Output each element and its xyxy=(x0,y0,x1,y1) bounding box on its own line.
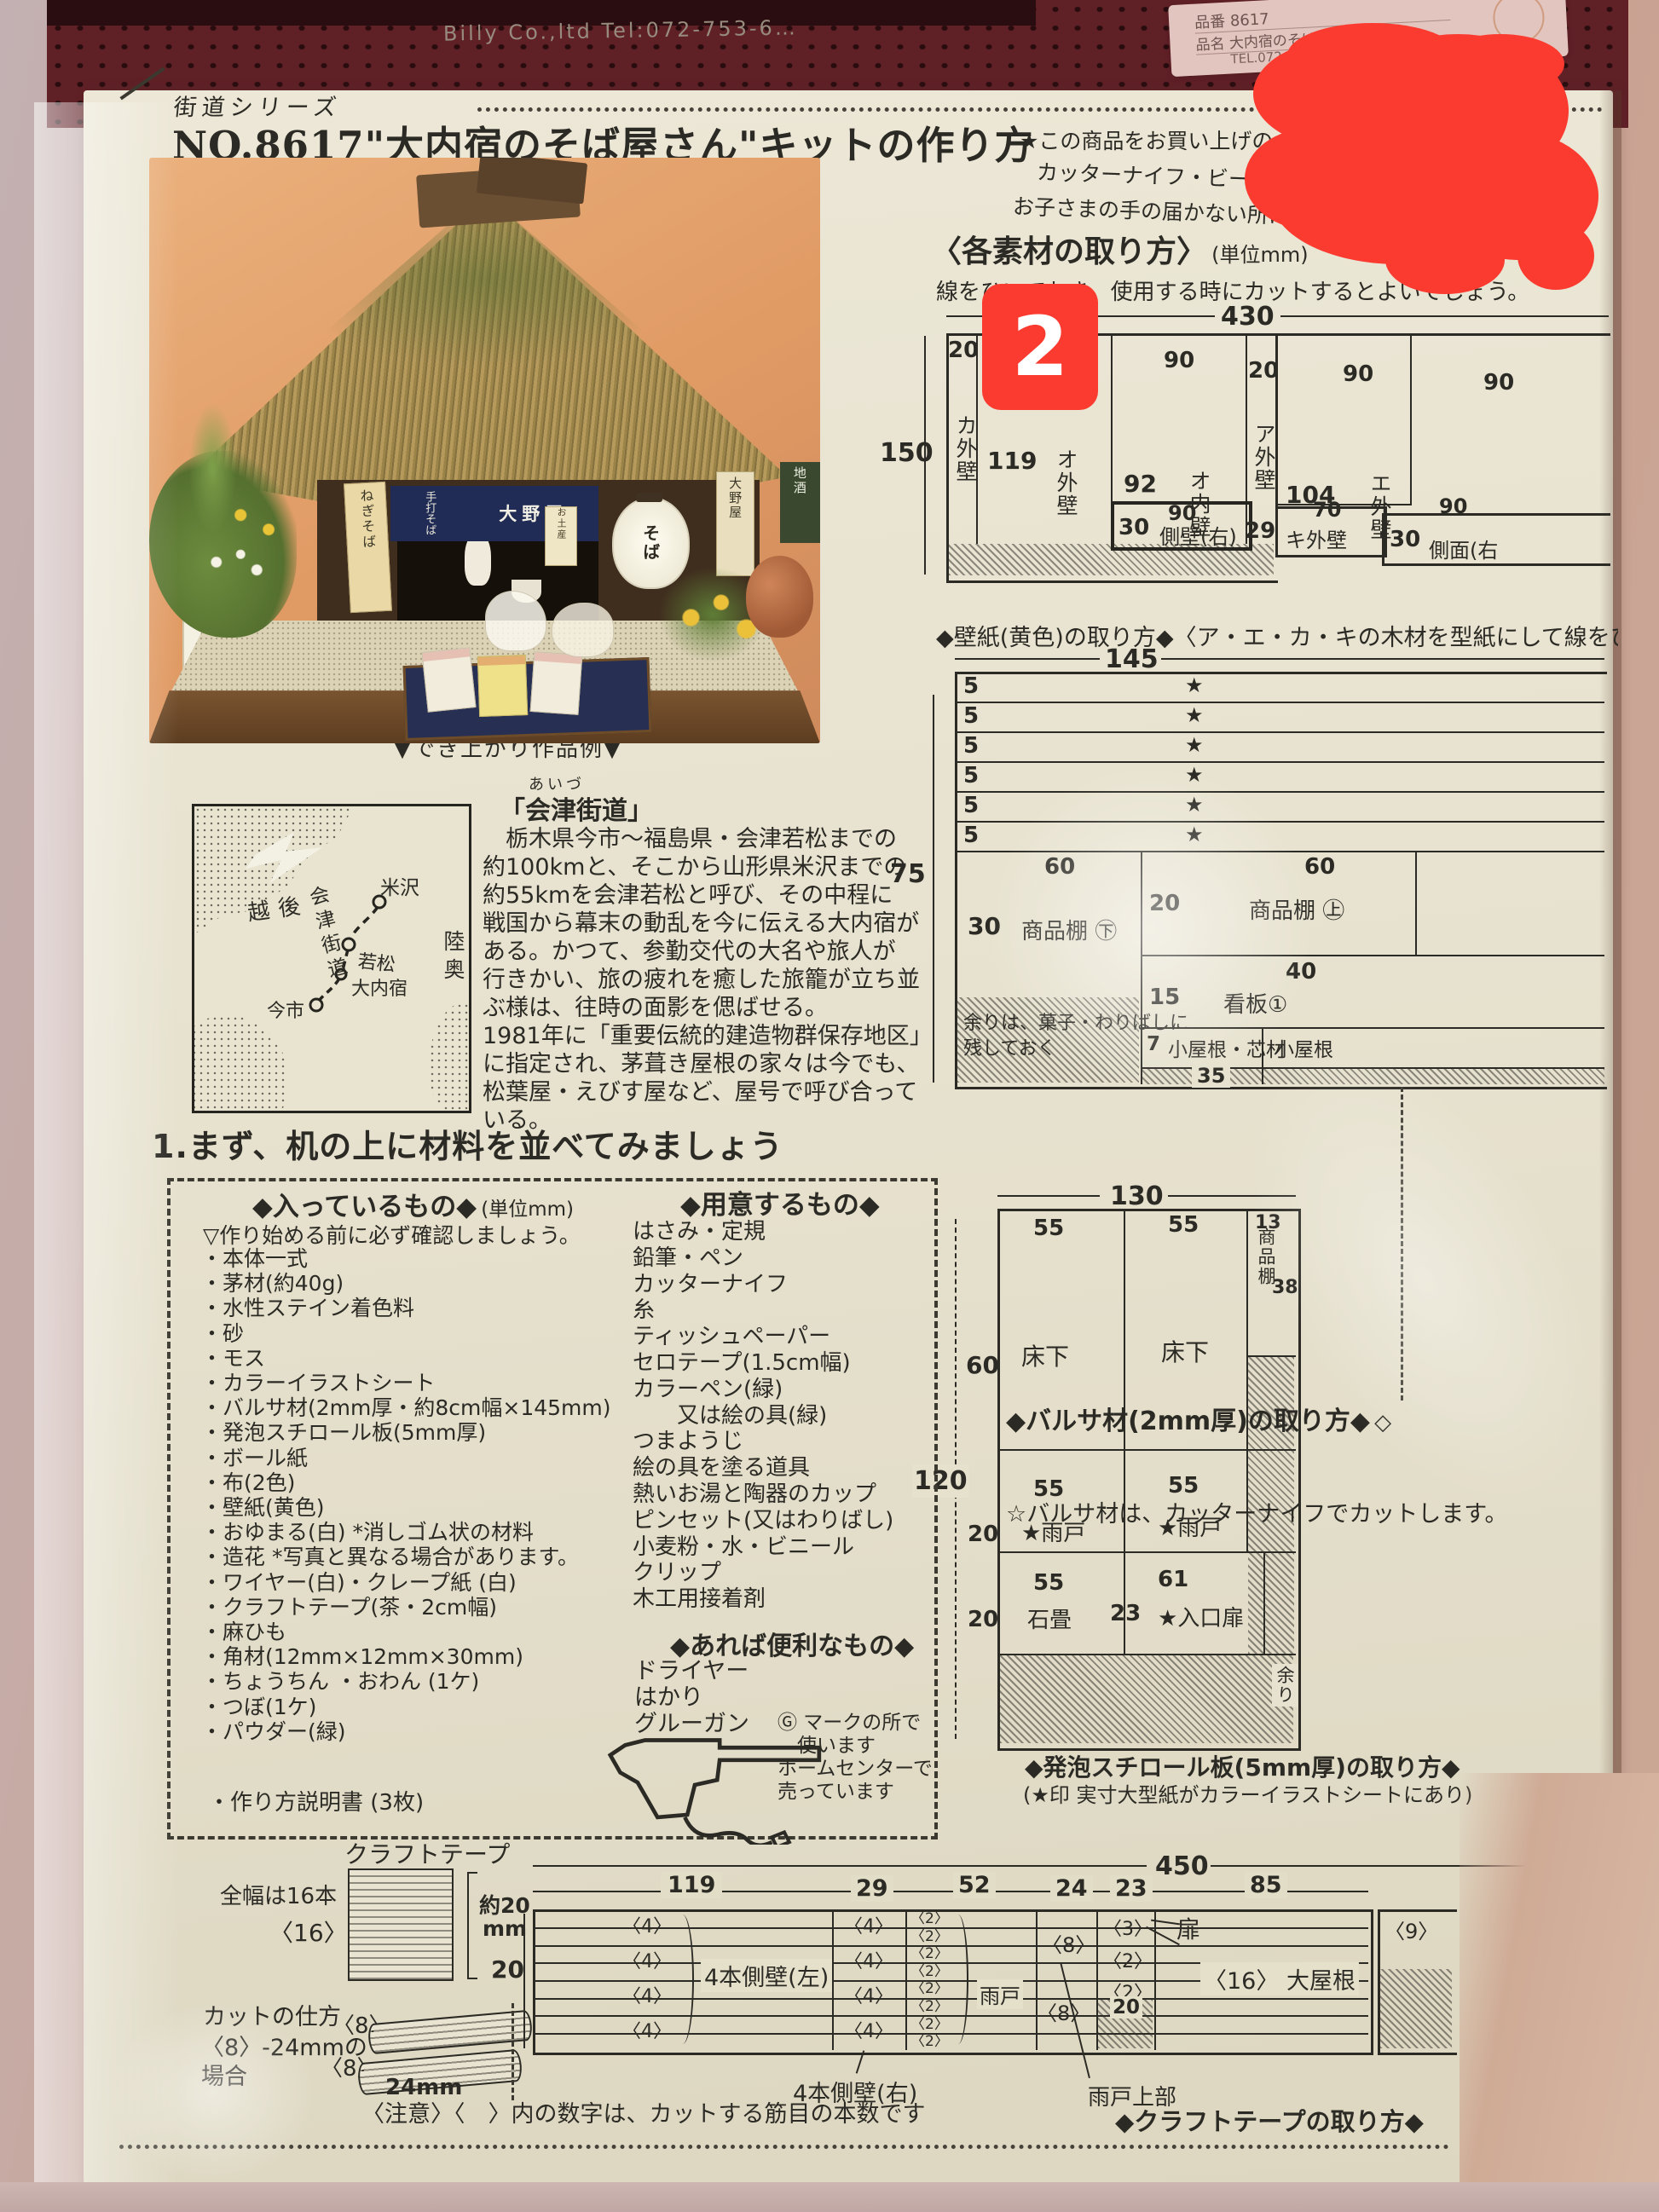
col-dim: 55 xyxy=(1168,1212,1199,1238)
label-left-wall: 4本側壁(左) xyxy=(701,1959,832,1992)
leftover-label: 余り xyxy=(1272,1664,1298,1707)
cell-shouhindana-h: 38 xyxy=(1272,1277,1298,1298)
count-2: 〈2〉 xyxy=(910,2016,948,2034)
included-last-item: ・作り方説明書 (3枚) xyxy=(208,1785,424,1816)
cutoff-hatch xyxy=(1380,1969,1452,2048)
list-item: 絵の具を塗る道具 xyxy=(633,1455,922,1481)
dim-line xyxy=(997,1195,1100,1197)
materials-title: 〈各素材の取り方〉 xyxy=(931,234,1207,269)
col-dim: 90 xyxy=(1343,361,1373,387)
seg-dim: 29 xyxy=(851,1875,893,1902)
included-header-text: ◆入っているもの◆ xyxy=(252,1192,477,1222)
dim-total: 450 xyxy=(1155,1851,1209,1881)
sweet-package-1 xyxy=(421,647,476,712)
cell-amado-1: ★雨戸 xyxy=(1021,1516,1085,1547)
cell-dim: 55 xyxy=(1033,1476,1064,1502)
cell-left-w: 60 xyxy=(1044,854,1075,880)
included-header: ◆入っているもの◆ (単位mm) xyxy=(252,1185,574,1223)
col-dim: 55 xyxy=(1033,1216,1064,1241)
cell-r1-h: 20 xyxy=(1149,891,1180,916)
red-scribble xyxy=(1219,17,1620,307)
list-item: 木工用接着剤 xyxy=(633,1586,922,1613)
crafttape-square xyxy=(348,1868,454,1981)
sign-omiyage-text: お土産 xyxy=(554,507,568,566)
dim-total-width: 145 xyxy=(1105,644,1159,674)
cell-iriguchi-h: 23 xyxy=(1110,1601,1141,1626)
count-9: 〈9〉 xyxy=(1384,1915,1438,1944)
cell-ki-h: 29 xyxy=(1245,518,1275,544)
list-item: セロテープ(1.5cm幅) xyxy=(633,1350,922,1377)
divider xyxy=(1124,1209,1125,1654)
cell-ki: キ外壁 xyxy=(1286,523,1347,553)
cell-yukashita-1: 床下 xyxy=(1021,1338,1069,1372)
bag-bottom-edge xyxy=(0,2182,1659,2212)
cell-ka: カ外壁 xyxy=(950,414,980,483)
banner-negisoba: ねぎそば xyxy=(344,482,392,614)
annotation-badge-number: 2 xyxy=(1012,299,1069,395)
count-4: 〈4〉 xyxy=(844,1911,893,1938)
lantern-text: そば xyxy=(639,524,663,562)
map-label-mutsu: 陸奥 xyxy=(437,930,468,986)
cell-left-h: 30 xyxy=(968,912,1001,940)
cell-r3-h: 7 xyxy=(1147,1033,1160,1055)
divider xyxy=(832,1909,834,2050)
flowers-yellow-left xyxy=(217,492,297,551)
cell-sokumen-w: 90 xyxy=(1439,494,1467,518)
included-note: ▽作り始める前に必ず確認しましょう。 xyxy=(203,1219,581,1250)
banner-oonoya-text: 大野屋 xyxy=(726,476,744,576)
list-item: ・つぼ(1ケ) xyxy=(201,1695,627,1719)
seg-dim: 119 xyxy=(661,1872,722,1898)
dim-line xyxy=(1280,315,1609,317)
list-item: カッターナイフ xyxy=(633,1272,922,1298)
label-right-wall: 4本側壁(右) xyxy=(793,2075,917,2108)
list-item: 松葉屋・えびす屋など、屋号で呼び合って xyxy=(483,1078,943,1106)
included-unit: (単位mm) xyxy=(481,1198,574,1221)
count-2: 〈2〉 xyxy=(910,1980,948,1998)
crafttape-count16: 〈16〉 xyxy=(269,1915,348,1949)
tools-items: はさみ・定規鉛筆・ペンカッターナイフ糸ティッシュペーパーセロテープ(1.5cm幅… xyxy=(633,1219,922,1613)
cell-amado-2: ★雨戸 xyxy=(1158,1510,1222,1542)
dim-line xyxy=(1161,658,1604,660)
list-item: ・モス xyxy=(201,1346,627,1371)
cell-r4: 小屋根 xyxy=(1275,1033,1333,1062)
finished-kit-photo: 手打そば 大野屋 そば ねぎそば 大内宿 大野屋 地酒 お土産 xyxy=(149,158,820,743)
crafttape-bracket xyxy=(467,1872,477,1979)
list-item: ・布(2色) xyxy=(201,1470,627,1495)
count-2: 〈2〉 xyxy=(1103,1946,1153,1973)
list-item: ピンセット(又はわりばし) xyxy=(633,1508,922,1534)
list-item: ・バルサ材(2mm厚・約8cm幅×145mm) xyxy=(201,1395,627,1420)
count-2-column: 〈2〉 〈2〉 〈2〉 〈2〉 〈2〉 〈2〉 〈2〉 〈2〉 xyxy=(910,1910,948,2051)
list-item: 約55kmを会津若松と呼び、その中程に xyxy=(483,881,943,910)
bag-corner-fold xyxy=(1460,1773,1659,2212)
cell-line xyxy=(1141,1027,1604,1029)
star-mark: ★ xyxy=(1185,763,1204,787)
col-dim: 20 xyxy=(948,338,979,363)
cell-dim: 55 xyxy=(1168,1473,1199,1499)
list-item: ・クラフトテープ(茶・2cm幅) xyxy=(201,1595,627,1620)
count-8: 〈8〉 xyxy=(1037,1996,1090,2026)
sweet-package-3 xyxy=(529,651,582,714)
count-4: 〈4〉 xyxy=(844,1946,893,1973)
list-item: ・ちょうちん ・おわん (1ケ) xyxy=(201,1669,627,1694)
star-mark: ★ xyxy=(1185,703,1204,727)
cell-r1-w: 60 xyxy=(1304,854,1335,880)
list-item: 栃木県今市〜福島県・会津若松までの xyxy=(483,825,943,853)
crafttape-diagram: 450 119 29 52 24 23 85 〈4〉 〈4〉 〈4〉 〈4〉 4… xyxy=(477,1833,1611,2174)
list-item: はさみ・定規 xyxy=(633,1219,922,1245)
label-amado: 雨戸 xyxy=(977,1979,1023,2009)
dim-line xyxy=(533,1865,1147,1867)
strip-dim: 5 xyxy=(963,763,979,788)
cut-case-2: 場合 xyxy=(201,2058,247,2091)
dim-total-height: 150 xyxy=(880,438,934,468)
count-4: 〈4〉 xyxy=(622,1981,672,2008)
gluegun-illustration xyxy=(597,1725,853,1845)
cell-left: 商品棚 ㊦ xyxy=(1021,914,1117,945)
divider xyxy=(905,1909,907,2050)
map-label-imaichi: 今市 xyxy=(267,996,304,1023)
list-item: ぶ様は、往時の面影を偲ばせる。 xyxy=(483,994,943,1022)
count-2: 〈2〉 xyxy=(910,1963,948,1981)
cell-r2-w: 40 xyxy=(1286,959,1316,985)
strip-line xyxy=(955,731,1604,733)
annotation-badge-2: 2 xyxy=(982,284,1098,410)
cell-ki-w: 70 xyxy=(1313,498,1341,522)
list-item: ドライヤー xyxy=(634,1659,805,1685)
col-dim: 20 xyxy=(1248,358,1279,384)
strip-line xyxy=(955,821,1604,823)
list-item: はかり xyxy=(634,1685,805,1712)
cell-a: ア外壁 xyxy=(1248,423,1279,492)
styrofoam-diagram: 130 120 55 55 13 60 床下 床下 商品棚 38 20 55 ★… xyxy=(887,1176,1613,1807)
count-2: 〈2〉 xyxy=(910,1945,948,1963)
sweet-package-2 xyxy=(477,655,528,717)
count-8: 〈8〉 xyxy=(1042,1928,1095,1958)
strip-line xyxy=(955,851,1604,852)
list-item: ・パウダー(緑) xyxy=(201,1719,627,1744)
strip-dim: 5 xyxy=(963,793,979,818)
history-title: 「会津街道」 xyxy=(500,789,653,827)
dim-line xyxy=(955,658,1100,660)
seg-dim: 24 xyxy=(1050,1875,1093,1902)
list-item: ・砂 xyxy=(201,1321,627,1346)
count-2: 〈2〉 xyxy=(910,1910,948,1928)
list-item: ・ワイヤー(白)・クレープ紙 (白) xyxy=(201,1570,627,1595)
divider xyxy=(1141,851,1142,1084)
lantern-cap xyxy=(636,493,662,502)
clay-pot xyxy=(746,556,813,638)
strip-line xyxy=(955,761,1604,763)
section1-title: 1.まず、机の上に材料を並べてみましょう xyxy=(152,1120,783,1167)
map-label-wakamatsu: 若松 xyxy=(356,946,396,977)
cell-r2-h: 15 xyxy=(1149,985,1180,1010)
list-item: ・造花 *写真と異なる場合があります。 xyxy=(201,1545,627,1569)
list-item: 行きかい、旅の疲れを癒した旅籠が立ち並 xyxy=(483,966,943,994)
count-2: 〈2〉 xyxy=(910,1928,948,1946)
cell-ishidatami: 石畳 xyxy=(1027,1603,1072,1634)
list-item: 糸 xyxy=(633,1297,922,1324)
wrapped-bag-2 xyxy=(552,603,614,657)
cell-r3-dim: 35 xyxy=(1192,1064,1230,1088)
cut-how: カットの仕方 xyxy=(203,1998,341,2031)
list-item: ・水性ステイン着色料 xyxy=(201,1296,627,1320)
crafttape-fullwidth: 全幅は16本 xyxy=(220,1879,337,1910)
list-item: ・麻ひも xyxy=(201,1620,627,1644)
list-item: ティッシュペーパー xyxy=(633,1324,922,1350)
bottom-hatch xyxy=(1000,1655,1293,1743)
count-4: 〈4〉 xyxy=(622,1911,672,1938)
list-item: カラーペン(緑) xyxy=(633,1377,922,1403)
dim-line xyxy=(1168,1195,1296,1197)
count-4: 〈4〉 xyxy=(622,2016,672,2043)
count-2: 〈2〉 xyxy=(910,1998,948,2016)
list-item: ・角材(12mm×12mm×30mm) xyxy=(201,1644,627,1669)
star-mark: ★ xyxy=(1185,673,1204,697)
strip-line xyxy=(955,791,1604,793)
cell-dim: 55 xyxy=(1033,1570,1064,1596)
package-photo: Billy Co.,ltd Tel:072-753-6… 品番 8617 品名 … xyxy=(0,0,1659,2212)
bottom-dotted-rule xyxy=(119,2145,1449,2149)
list-item: 小麦粉・水・ビニール xyxy=(633,1534,922,1561)
divider xyxy=(1415,851,1417,955)
star-mark: ★ xyxy=(1185,733,1204,757)
label-tobira: 扉 xyxy=(1176,1911,1200,1945)
seg-dim: 85 xyxy=(1245,1872,1287,1898)
count-2: 〈2〉 xyxy=(910,2033,948,2051)
row2-height: 20 xyxy=(968,1522,998,1547)
cell-line xyxy=(1141,955,1604,956)
cell-sokumen: 側面(右 xyxy=(1429,534,1498,563)
styrofoam-caption-2: (★印 実寸大型紙がカラーイラストシートにあり) xyxy=(1023,1778,1472,1808)
divider xyxy=(1410,333,1412,504)
cell-yukashita-2: 床下 xyxy=(1161,1334,1209,1368)
list-item: 戦国から幕末の動乱を今に伝える大内宿が xyxy=(483,910,943,938)
hatch-20: 20 xyxy=(1110,1996,1142,2019)
included-items: ・本体一式・茅材(約40g)・水性ステイン着色料・砂・モス・カラーイラストシート… xyxy=(201,1246,627,1744)
strip-dim: 5 xyxy=(963,703,979,729)
list-item: 1981年に「重要伝統的建造物群保存地区」 xyxy=(483,1022,943,1050)
list-item: ・ボール紙 xyxy=(201,1446,627,1470)
cell-o-out-h: 119 xyxy=(987,447,1037,475)
cell-dim: 61 xyxy=(1158,1567,1188,1592)
right-col-hatch xyxy=(1248,1357,1294,1654)
cell-r1: 商品棚 ㊤ xyxy=(1249,893,1344,925)
banner-negisoba-text: ねぎそば xyxy=(355,488,382,612)
strip-dim: 5 xyxy=(963,673,979,699)
sign-omiyage: お土産 xyxy=(545,506,576,567)
banner-jizake: 地酒 xyxy=(780,462,820,542)
kaido-map: 越後 米沢 会津街道 若松 大内宿 今市 陸奥 xyxy=(192,804,471,1113)
list-item: ・おゆまる(白) *消しゴム状の材料 xyxy=(201,1520,627,1545)
noren-text: 手打そば xyxy=(421,491,437,535)
dim-total-width: 130 xyxy=(1110,1181,1164,1211)
label-ooyane: 〈16〉 大屋根 xyxy=(1200,1962,1359,1995)
map-label-yonezawa: 米沢 xyxy=(380,871,419,900)
list-item: ある。かつて、参勤交代の大名や旅人が xyxy=(483,938,943,966)
star-mark: ★ xyxy=(1185,793,1204,817)
list-item: ・カラーイラストシート xyxy=(201,1371,627,1395)
list-item: 熱いお湯と陶器のカップ xyxy=(633,1481,922,1508)
crafttape-diagram-caption: ◆クラフトテープの取り方◆ xyxy=(1115,2102,1424,2138)
history-paragraph: 栃木県今市〜福島県・会津若松までの約100kmと、そこから山形県米沢までの約55… xyxy=(483,825,943,1135)
cell-r3: 小屋根・芯材 xyxy=(1168,1033,1286,1062)
list-item: に指定され、茅葺き屋根の家々は今でも、 xyxy=(483,1050,943,1078)
handy-header: ◆あれば便利なもの◆ xyxy=(670,1625,914,1662)
list-item: ・茅材(約40g) xyxy=(201,1271,627,1296)
list-item: ・壁紙(黄色) xyxy=(201,1495,627,1520)
col-dim: 90 xyxy=(1483,370,1514,396)
list-item: ・本体一式 xyxy=(201,1246,627,1271)
map-label-ouchijuku: 大内宿 xyxy=(351,973,408,1001)
list-item: クリップ xyxy=(633,1560,922,1586)
divider xyxy=(1263,1551,1265,1654)
banner-jizake-text: 地酒 xyxy=(791,466,809,542)
col-dim: 90 xyxy=(1164,348,1194,373)
cell-sokumen-h: 30 xyxy=(1390,527,1420,552)
cell-r2: 看板① xyxy=(1223,987,1287,1019)
list-item: つまようじ xyxy=(633,1429,922,1455)
cell-sokuheki: 側壁(右) xyxy=(1159,520,1237,550)
row1-height: 60 xyxy=(966,1351,999,1379)
paper-lantern: そば xyxy=(612,497,690,588)
strip-dim: 5 xyxy=(963,823,979,848)
cell-iriguchi: ★入口扉 xyxy=(1158,1601,1244,1632)
cell-o-out: オ外壁 xyxy=(1050,448,1081,517)
seg-dim: 23 xyxy=(1110,1875,1153,1902)
tools-header: ◆用意するもの◆ xyxy=(680,1183,880,1222)
cell-sokuheki-h: 30 xyxy=(1119,515,1149,540)
list-item: 約100kmと、そこから山形県米沢までの xyxy=(483,853,943,881)
seg-dim: 52 xyxy=(953,1872,996,1898)
cell-o-in-h: 92 xyxy=(1124,470,1157,498)
strip-line xyxy=(955,702,1604,703)
leftover-note-1: 余りは、菓子・わりばしに xyxy=(963,1008,1188,1035)
seg-dim-line xyxy=(533,1891,1368,1892)
count-4: 〈4〉 xyxy=(622,1946,672,1973)
leftover-note-2: 残しておく xyxy=(963,1033,1056,1060)
count-4: 〈4〉 xyxy=(844,2016,893,2043)
banner-oonoya: 大野屋 xyxy=(716,471,754,577)
list-item: ・発泡スチロール板(5mm厚) xyxy=(201,1420,627,1445)
strip-dim: 5 xyxy=(963,733,979,759)
divider xyxy=(1036,1909,1038,2050)
star-mark: ★ xyxy=(1185,823,1204,846)
list-item: 又は絵の具(緑) xyxy=(633,1403,922,1429)
row3-height: 20 xyxy=(968,1607,998,1632)
count-4: 〈4〉 xyxy=(844,1981,893,2008)
list-item: 鉛筆・ペン xyxy=(633,1245,922,1272)
